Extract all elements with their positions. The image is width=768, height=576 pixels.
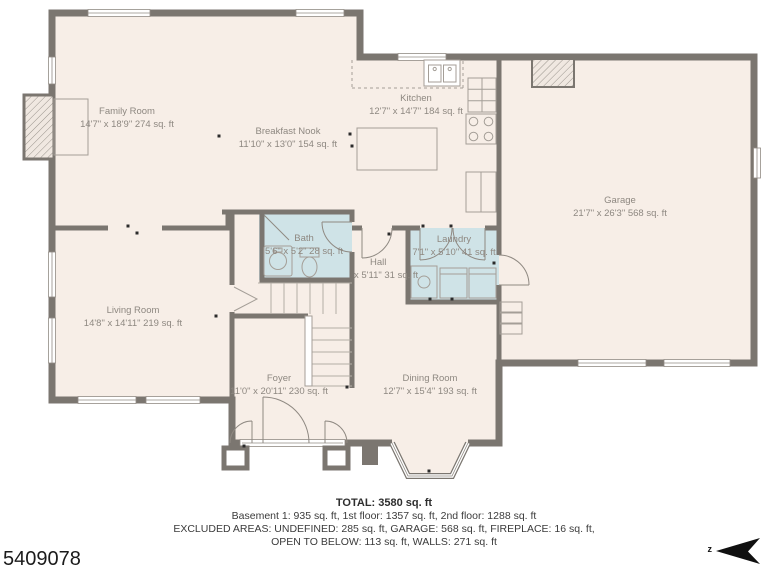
excluded-areas-line1: EXCLUDED AREAS: UNDEFINED: 285 sq. ft, G… (0, 523, 768, 536)
floor-areas: Basement 1: 935 sq. ft, 1st floor: 1357 … (0, 510, 768, 523)
room-label-breakfast-nook: Breakfast Nook 11'10" x 13'0" 154 sq. ft (239, 126, 337, 151)
room-dimensions: 12'7" x 14'7" 184 sq. ft (369, 106, 463, 119)
room-label-foyer: Foyer 11'0" x 20'11" 230 sq. ft (230, 373, 328, 398)
room-name: Hall (354, 257, 418, 270)
room-label-bath: Bath 5'6" x 5'2" 28 sq. ft (265, 233, 343, 258)
room-name: Garage (573, 195, 667, 208)
room-label-kitchen: Kitchen 12'7" x 14'7" 184 sq. ft (369, 93, 463, 118)
room-name: Foyer (230, 373, 328, 386)
room-label-family-room: Family Room 14'7" x 18'9" 274 sq. ft (80, 106, 174, 131)
room-label-living-room: Living Room 14'8" x 14'11" 219 sq. ft (84, 305, 182, 330)
porch-pier (362, 443, 378, 465)
total-area: TOTAL: 3580 sq. ft (0, 497, 768, 510)
room-dimensions: 5'6" x 5'2" 28 sq. ft (265, 246, 343, 259)
area-summary: TOTAL: 3580 sq. ft Basement 1: 935 sq. f… (0, 497, 768, 549)
room-dimensions: 11'0" x 20'11" 230 sq. ft (230, 386, 328, 399)
north-arrow-icon (714, 536, 762, 566)
floor-fills (52, 13, 754, 476)
room-name: Kitchen (369, 93, 463, 106)
room-name: Bath (265, 233, 343, 246)
room-name: Breakfast Nook (239, 126, 337, 139)
room-label-hall: Hall x 5'11" 31 sq. ft (354, 257, 418, 282)
room-label-dining-room: Dining Room 12'7" x 15'4" 193 sq. ft (383, 373, 477, 398)
room-dimensions: 12'7" x 15'4" 193 sq. ft (383, 386, 477, 399)
floorplan-page: Family Room 14'7" x 18'9" 274 sq. ft Bre… (0, 0, 768, 576)
plan-id-number: 5409078 (3, 548, 81, 571)
room-dimensions: 14'7" x 18'9" 274 sq. ft (80, 119, 174, 132)
compass: z (708, 536, 763, 566)
garage-chimney (532, 59, 574, 87)
compass-letter: z (708, 544, 713, 554)
room-dimensions: 14'8" x 14'11" 219 sq. ft (84, 318, 182, 331)
room-name: Dining Room (383, 373, 477, 386)
room-name: Laundry (412, 234, 495, 247)
room-dimensions: 7'1" x 5'10" 41 sq. ft (412, 247, 495, 260)
room-label-laundry: Laundry 7'1" x 5'10" 41 sq. ft (412, 234, 495, 259)
excluded-areas-line2: OPEN TO BELOW: 113 sq. ft, WALLS: 271 sq… (0, 536, 768, 549)
room-dimensions: 21'7" x 26'3" 568 sq. ft (573, 208, 667, 221)
room-dimensions: 11'10" x 13'0" 154 sq. ft (239, 139, 337, 152)
room-dimensions: x 5'11" 31 sq. ft (354, 270, 418, 283)
room-label-garage: Garage 21'7" x 26'3" 568 sq. ft (573, 195, 667, 220)
room-name: Family Room (80, 106, 174, 119)
floorplan-drawing (0, 0, 768, 576)
porch-columns (224, 448, 348, 468)
room-name: Living Room (84, 305, 182, 318)
